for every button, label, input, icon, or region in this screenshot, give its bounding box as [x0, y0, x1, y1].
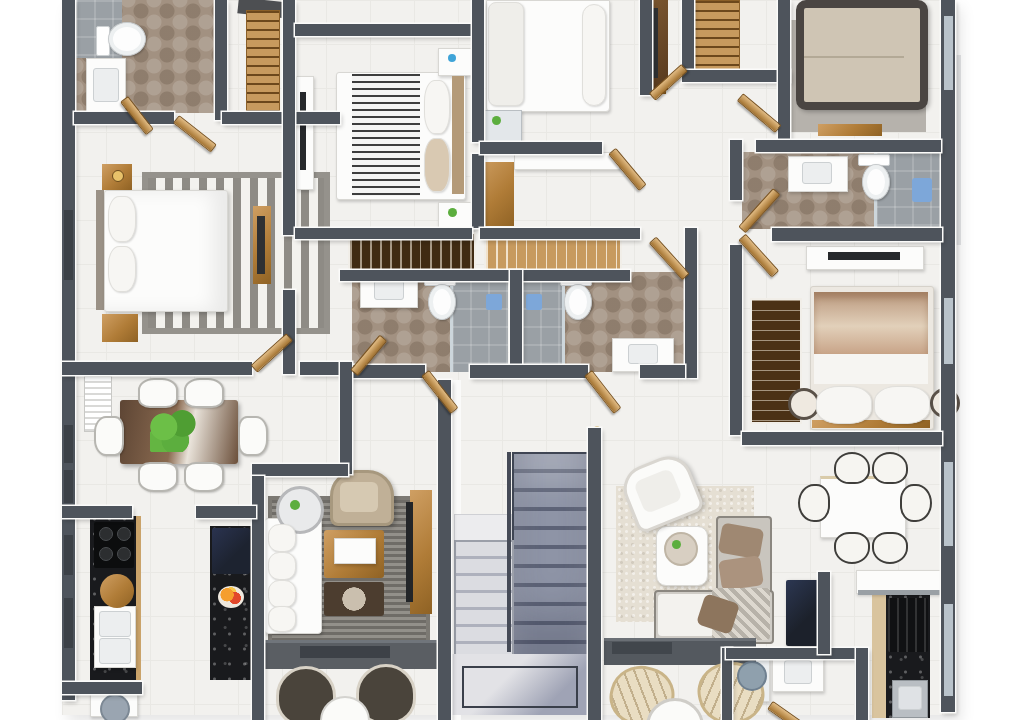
window-kitchen-right [944, 604, 953, 696]
ladder-shelf-closet-tl [246, 10, 280, 112]
wall-bedroom-tr-left [778, 0, 790, 140]
wall-kitchen-top-a [62, 506, 132, 518]
wall-rightunit-left-b [730, 245, 742, 435]
wall-closet-tl-bottom [222, 112, 340, 124]
nightstand-left-b [102, 314, 138, 342]
pillow-bed-left-a [108, 196, 136, 242]
basin-bathroom-bottom [784, 660, 812, 684]
sofa-ll-pillow-4 [268, 606, 296, 632]
chair-dl-bottom-1 [138, 462, 178, 492]
pillow-bed-tc [488, 2, 524, 106]
door-hall-mid-b [584, 370, 621, 414]
plant-dining-left [150, 410, 196, 452]
basin-bath-mid-b [628, 344, 658, 364]
coffee-tray-ll [334, 538, 376, 564]
toilet-bowl-mid-a [428, 284, 456, 320]
shower-mat-mid-b [526, 294, 542, 310]
chair-dl-top-1 [138, 378, 178, 408]
wall-laundry-top [62, 682, 142, 694]
vanity-basin-tl [93, 68, 119, 102]
basin-bathroom-right [802, 162, 832, 184]
dining-table-right [820, 476, 906, 538]
stairs-flight-left [454, 540, 514, 656]
chair-dl-right [238, 416, 268, 456]
blanket-fold-tr [804, 56, 904, 58]
wall-midbed-bottom [295, 228, 472, 239]
wall-rightunit-left-a [730, 140, 742, 200]
shower-mid-right [522, 272, 564, 372]
wall-bedroom-right-bottom [742, 432, 942, 445]
stove-right [888, 598, 928, 652]
cutting-board [100, 574, 134, 608]
chair-dr-right [900, 484, 932, 522]
door-hall-top-b [737, 93, 782, 133]
wall-stairs-right [588, 428, 601, 720]
shower-glass-mid-b [562, 272, 565, 372]
wall-hall-top-b [470, 365, 588, 378]
toilet-bowl-mid-b [564, 284, 592, 320]
window-kitchen-left-b [64, 598, 73, 648]
plant-side-table [290, 500, 300, 510]
door-bathroom-top-left [173, 115, 217, 152]
sink-basin-left-a [99, 611, 131, 637]
wall-corridor-left [472, 154, 484, 228]
wall-topcenter-right [640, 0, 652, 95]
plant-coffee-right [672, 540, 681, 549]
burner-3 [99, 547, 113, 561]
pillow-bed-left-b [108, 246, 136, 292]
wall-living-left-top [252, 464, 348, 476]
headboard-midbed [452, 76, 464, 194]
wall-dining-right [340, 362, 352, 474]
tv-midbed [300, 92, 306, 170]
window-dining-right [944, 462, 953, 546]
fruit-bowl [218, 586, 244, 608]
counter-edge-wood [136, 516, 141, 680]
outer-wall-hint-right [955, 55, 961, 245]
wall-closet-tr-left [682, 0, 694, 76]
ladder-shelf-closet-tr [694, 0, 740, 70]
stairs-landing-frame [462, 666, 578, 708]
fridge-kitchen-left [212, 528, 250, 574]
sofa-ll-pillow-1 [268, 524, 296, 552]
chair-dr-bottom-1 [834, 532, 870, 564]
chair-dr-top-1 [834, 452, 870, 484]
wall-bath-right-bottom [772, 228, 942, 241]
window-dining-left-a [64, 425, 73, 463]
wall-kitchen-top-b [196, 506, 256, 518]
chair-dr-top-2 [872, 452, 908, 484]
wall-bedroom-tr-bottom [756, 140, 941, 152]
wall-between-baths [510, 270, 522, 372]
tray-coffee-right [664, 532, 698, 566]
wall-bath-tl-right [215, 0, 227, 120]
stairs-divider-rail [507, 452, 511, 652]
bar-counter-inset-lr [612, 642, 672, 654]
armchair-cushion-ll [340, 482, 378, 512]
chair-dr-bottom-2 [872, 532, 908, 564]
toilet-bowl-tl [108, 22, 146, 56]
wall-left-bedroom-right-a [283, 0, 295, 235]
towel-blue-right [912, 178, 932, 202]
pillow-bed-right-a [816, 386, 872, 424]
burner-1 [99, 527, 113, 541]
pillow-midbed-b [424, 138, 450, 192]
fridge-right [786, 580, 820, 646]
wall-fridge-nook [818, 572, 830, 654]
tv-living-left [406, 502, 413, 602]
wall-hall-top-c [640, 365, 685, 378]
apartment-floor [62, 0, 955, 715]
window-kitchen-left-a [64, 535, 73, 575]
nightstand-midbed-top [438, 48, 474, 76]
burner-2 [117, 527, 131, 541]
plant-midbed [448, 208, 457, 217]
pampas-decor [340, 586, 368, 612]
chair-dr-left [798, 484, 830, 522]
pillow-bed-right-b [874, 386, 930, 424]
wall-bath-bottom-right [856, 648, 868, 720]
wall-midbed-top [295, 24, 475, 36]
tv-console-living-left [410, 490, 432, 614]
tv-cabinet-left [257, 216, 265, 274]
door-bathroom-bottom [767, 701, 810, 720]
duvet-roll-bed-tc [582, 4, 606, 106]
sofa-ll-pillow-2 [268, 552, 296, 580]
headboard-bed-left [96, 190, 104, 310]
wardrobe-corridor-top-face [482, 154, 514, 162]
floor-plan-render [0, 0, 1024, 720]
bar-counter-inset-ll [300, 646, 390, 658]
wall-dining-top-a [62, 362, 252, 375]
shower-mid-left [452, 272, 508, 372]
blanket-striped-midbed [352, 74, 420, 196]
decor-midbed-top [448, 54, 456, 62]
stairs-landing-upper [454, 514, 512, 542]
sink-basin-right [898, 686, 922, 710]
chair-dl-bottom-2 [184, 462, 224, 492]
window-bedroom-left [64, 210, 73, 280]
pillow-midbed-a [424, 80, 450, 134]
stairs-flight-right [512, 452, 592, 656]
sofa-right-pillow-2 [718, 555, 764, 591]
counter-edge-right [858, 590, 942, 595]
washer-drum-left [100, 694, 130, 720]
shelf-corridor [514, 152, 620, 170]
flowers-tc [492, 116, 501, 125]
window-bedroom-right [944, 298, 953, 364]
wall-baths-top [340, 270, 630, 281]
cabinet-wood-right [872, 594, 886, 718]
shower-mat-mid-a [486, 294, 502, 310]
basin-bath-mid-a [374, 280, 404, 300]
sink-basin-left-b [99, 638, 131, 664]
chair-dl-left [94, 416, 124, 456]
bed-top-right [796, 0, 928, 110]
wall-left-bedroom-right-b [283, 290, 295, 374]
sofa-ll-pillow-3 [268, 580, 296, 608]
blanket-tan-bed-right [814, 292, 928, 354]
wall-baths-right [685, 228, 697, 378]
lamp-left-a [112, 170, 124, 182]
washer-drum-bottom [737, 661, 767, 691]
toilet-bowl-right [862, 164, 890, 200]
wall-bath-tl-bottom [74, 112, 174, 124]
burner-4 [117, 547, 131, 561]
wall-outer-left [62, 0, 75, 700]
sheet-bed-right [814, 354, 928, 384]
wall-corridor-bottom [480, 228, 640, 239]
bench-bedroom-tr [818, 124, 882, 136]
tv-bedroom-right [828, 252, 900, 260]
nightstand-tc [482, 110, 522, 142]
wall-closet-tr-bottom [682, 70, 790, 82]
wall-topcenter-bottom [480, 142, 602, 154]
wall-bath-bottom-top [726, 648, 858, 659]
wardrobe-corridor-vertical [482, 154, 514, 228]
wall-stairs-left [438, 380, 451, 720]
wall-midbed-right [472, 0, 484, 142]
window-bedroom-tr [944, 16, 953, 90]
window-dining-left-b [64, 470, 73, 503]
chair-dl-top-2 [184, 378, 224, 408]
